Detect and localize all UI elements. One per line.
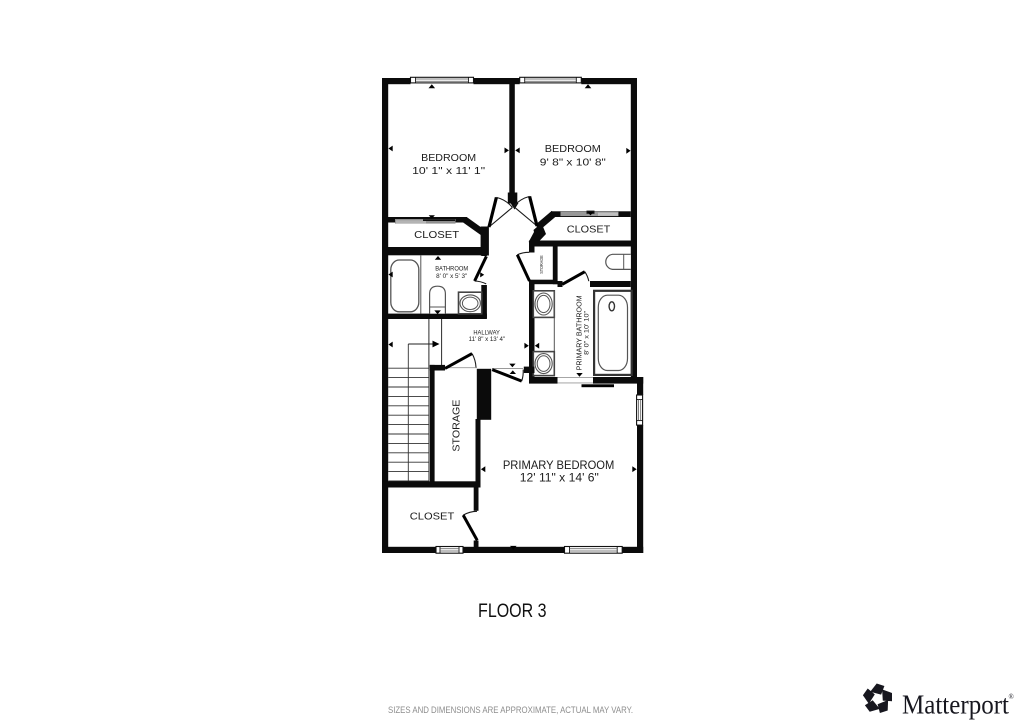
svg-text:®: ® [1009, 693, 1015, 701]
svg-text:BEDROOM: BEDROOM [545, 143, 601, 155]
svg-text:8' 0" x 10' 10": 8' 0" x 10' 10" [583, 310, 590, 355]
svg-text:9' 8" x 10' 8": 9' 8" x 10' 8" [540, 156, 606, 168]
svg-text:STORAGE: STORAGE [450, 400, 462, 452]
svg-text:SIZES AND DIMENSIONS ARE APPRO: SIZES AND DIMENSIONS ARE APPROXIMATE, AC… [388, 705, 633, 716]
svg-text:FLOOR 3: FLOOR 3 [478, 600, 547, 622]
svg-text:STORAGE: STORAGE [539, 255, 544, 274]
svg-text:8' 0" x 5' 3": 8' 0" x 5' 3" [436, 273, 467, 280]
svg-text:CLOSET: CLOSET [410, 512, 455, 523]
svg-text:Matterport: Matterport [902, 690, 1009, 720]
svg-text:PRIMARY BEDROOM: PRIMARY BEDROOM [503, 460, 615, 472]
svg-text:10' 1" x 11' 1": 10' 1" x 11' 1" [412, 165, 485, 177]
svg-text:BEDROOM: BEDROOM [421, 152, 476, 164]
svg-text:CLOSET: CLOSET [567, 225, 611, 236]
svg-text:CLOSET: CLOSET [414, 230, 459, 241]
svg-text:BATHROOM: BATHROOM [435, 266, 468, 273]
svg-text:12' 11" x 14' 6": 12' 11" x 14' 6" [520, 473, 599, 485]
svg-text:PRIMARY BATHROOM: PRIMARY BATHROOM [574, 295, 583, 370]
svg-text:11' 8" x 13' 4": 11' 8" x 13' 4" [469, 336, 506, 343]
